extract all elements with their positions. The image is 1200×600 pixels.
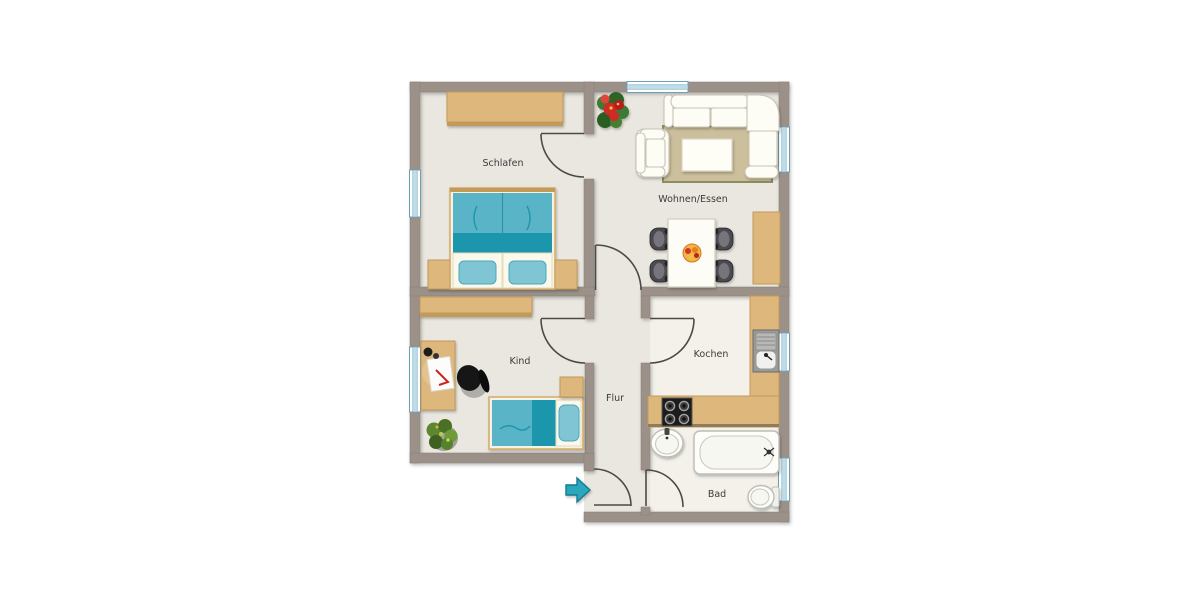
room-label-kochen: Kochen	[694, 349, 729, 360]
schlafen-furniture	[428, 92, 577, 289]
nightstand-kind	[560, 377, 583, 397]
floor-plan-page: Schlafen Wohnen/Essen Kind Flur Kochen B…	[0, 0, 1200, 600]
wash-basin-icon	[651, 428, 683, 457]
sofa-corner	[747, 95, 779, 131]
sofa-right-armrest	[745, 166, 778, 178]
wall-living-kitchen-divider	[641, 287, 789, 296]
wall-kitchen-west-upper	[641, 296, 650, 318]
wall-kind-east-lower	[585, 363, 594, 453]
single-bed	[489, 397, 583, 449]
stove-icon	[662, 398, 692, 426]
nightstand-left	[428, 260, 450, 289]
sofa-cushion	[711, 108, 747, 127]
window-living-right	[779, 127, 790, 172]
window-kind-left	[410, 347, 421, 412]
sideboard	[753, 212, 780, 284]
bathtub-icon	[694, 431, 779, 474]
wall-outer-top	[410, 82, 789, 92]
double-bed	[450, 188, 555, 289]
kitchen-sink-icon	[753, 330, 779, 372]
wall-kind-east-upper	[585, 296, 594, 319]
desk-lamp-icon	[424, 348, 433, 357]
coffee-table	[682, 139, 732, 171]
sofa-cushion	[749, 131, 777, 166]
room-label-kind: Kind	[510, 356, 531, 367]
wall-outer-bottom	[584, 512, 789, 522]
room-label-schlafen: Schlafen	[483, 158, 524, 169]
sofa-back	[671, 95, 749, 108]
wall-kind-bottom	[410, 453, 594, 463]
wall-entry-stub	[584, 453, 594, 471]
room-label-flur: Flur	[606, 393, 624, 404]
fruit-bowl-icon	[683, 244, 701, 262]
nightstand-right	[555, 260, 577, 289]
desk	[421, 341, 455, 410]
sofa-cushion	[673, 108, 710, 127]
window-living-top	[627, 82, 688, 93]
wall-bath-west-stub	[641, 507, 650, 515]
wall-schlafen-east-upper	[584, 82, 594, 134]
window-kitchen-right	[779, 333, 790, 371]
room-label-bad: Bad	[708, 489, 726, 500]
wardrobe-schlafen	[447, 92, 563, 126]
window-bath-right	[779, 458, 790, 501]
floor-plan: Schlafen Wohnen/Essen Kind Flur Kochen B…	[0, 0, 1200, 600]
room-label-wohnen-essen: Wohnen/Essen	[658, 194, 728, 205]
armchair	[636, 129, 669, 177]
window-schlafen-left	[410, 170, 421, 217]
wardrobe-kind	[420, 297, 532, 317]
toilet-icon	[748, 486, 779, 509]
wall-schlafen-east-lower	[584, 179, 594, 296]
